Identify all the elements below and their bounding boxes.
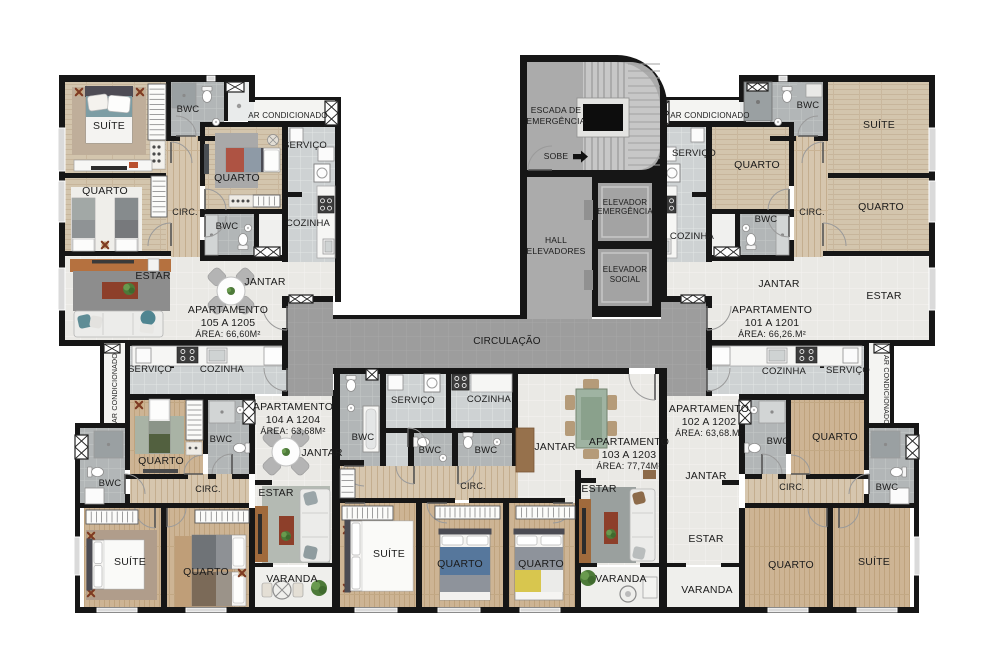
svg-text:BWC: BWC: [876, 482, 899, 493]
svg-text:JANTAR: JANTAR: [758, 278, 799, 290]
svg-text:ESCADA DE: ESCADA DE: [531, 105, 582, 115]
svg-text:QUARTO: QUARTO: [734, 159, 780, 171]
svg-text:COZINHA: COZINHA: [670, 231, 715, 242]
svg-text:SERVIÇO: SERVIÇO: [391, 395, 435, 406]
svg-text:BWC: BWC: [216, 221, 239, 232]
svg-text:ELEVADOR: ELEVADOR: [603, 265, 648, 274]
svg-text:VARANDA: VARANDA: [681, 584, 732, 596]
svg-text:EMERGÊNCIA: EMERGÊNCIA: [526, 116, 585, 126]
svg-text:SERVIÇO: SERVIÇO: [128, 364, 172, 375]
svg-text:ELEVADORES: ELEVADORES: [526, 246, 585, 256]
svg-text:SUÍTE: SUÍTE: [858, 555, 890, 568]
svg-text:JANTAR: JANTAR: [534, 441, 575, 453]
svg-text:104 A 1204: 104 A 1204: [266, 414, 321, 426]
svg-text:VARANDA: VARANDA: [266, 573, 317, 585]
svg-text:ÁREA: 63,68M²: ÁREA: 63,68M²: [260, 426, 325, 436]
svg-text:JANTAR: JANTAR: [244, 276, 285, 288]
svg-text:SUÍTE: SUÍTE: [863, 118, 895, 131]
svg-text:COZINHA: COZINHA: [467, 394, 512, 405]
svg-text:105 A 1205: 105 A 1205: [201, 317, 256, 329]
svg-text:BWC: BWC: [797, 100, 820, 111]
svg-text:CIRCULAÇÃO: CIRCULAÇÃO: [473, 334, 541, 347]
svg-text:HALL: HALL: [545, 235, 567, 245]
svg-text:BWC: BWC: [755, 214, 778, 225]
svg-text:SERVIÇO: SERVIÇO: [672, 148, 716, 159]
svg-text:ESTAR: ESTAR: [581, 483, 616, 495]
svg-text:AR CONDICIONADO: AR CONDICIONADO: [112, 353, 119, 423]
svg-text:APARTAMENTO: APARTAMENTO: [589, 436, 669, 448]
svg-text:QUARTO: QUARTO: [812, 431, 858, 443]
svg-text:ÁREA: 63,68.M²: ÁREA: 63,68.M²: [675, 428, 743, 438]
svg-text:BWC: BWC: [475, 445, 498, 456]
svg-text:EMERGÊNCIA: EMERGÊNCIA: [597, 207, 653, 216]
svg-text:ESTAR: ESTAR: [258, 487, 293, 499]
svg-text:ÁREA: 66,60M²: ÁREA: 66,60M²: [195, 329, 260, 339]
svg-text:CIRC.: CIRC.: [779, 482, 805, 492]
svg-text:QUARTO: QUARTO: [437, 558, 483, 570]
svg-text:QUARTO: QUARTO: [518, 558, 564, 570]
svg-text:JANTAR: JANTAR: [685, 470, 726, 482]
svg-text:SOBE: SOBE: [544, 151, 569, 161]
svg-text:ÁREA: 66,26.M²: ÁREA: 66,26.M²: [738, 329, 806, 339]
svg-text:CIRC.: CIRC.: [172, 207, 198, 217]
svg-text:CIRC.: CIRC.: [460, 481, 486, 491]
svg-text:CIRC.: CIRC.: [799, 207, 825, 217]
svg-text:QUARTO: QUARTO: [82, 185, 128, 197]
svg-text:COZINHA: COZINHA: [762, 366, 807, 377]
svg-text:VARANDA: VARANDA: [595, 573, 646, 585]
svg-text:JANTAR: JANTAR: [301, 447, 342, 459]
svg-text:APARTAMENTO: APARTAMENTO: [188, 304, 268, 316]
svg-text:AR CONDICIONADO: AR CONDICIONADO: [248, 111, 327, 120]
svg-text:QUARTO: QUARTO: [858, 201, 904, 213]
svg-text:103 A 1203: 103 A 1203: [602, 449, 657, 461]
svg-text:CIRC.: CIRC.: [195, 484, 221, 494]
svg-text:ESTAR: ESTAR: [866, 290, 901, 302]
svg-text:AR CONDICIONADO: AR CONDICIONADO: [882, 355, 889, 425]
svg-text:BWC: BWC: [352, 432, 375, 443]
svg-text:QUARTO: QUARTO: [214, 172, 260, 184]
svg-text:ESTAR: ESTAR: [135, 270, 170, 282]
svg-text:BWC: BWC: [210, 434, 233, 445]
svg-text:ESTAR: ESTAR: [688, 533, 723, 545]
svg-text:102 A 1202: 102 A 1202: [682, 416, 737, 428]
svg-text:BWC: BWC: [99, 478, 122, 489]
svg-text:SERVIÇO: SERVIÇO: [283, 140, 327, 151]
svg-text:SUÍTE: SUÍTE: [93, 119, 125, 132]
svg-text:BWC: BWC: [177, 104, 200, 115]
svg-text:QUARTO: QUARTO: [768, 559, 814, 571]
svg-text:APARTAMENTO: APARTAMENTO: [253, 401, 333, 413]
svg-text:QUARTO: QUARTO: [183, 566, 229, 578]
svg-text:COZINHA: COZINHA: [286, 218, 331, 229]
svg-text:APARTAMENTO: APARTAMENTO: [732, 304, 812, 316]
svg-text:SUÍTE: SUÍTE: [114, 555, 146, 568]
svg-text:BWC: BWC: [419, 445, 442, 456]
svg-text:APARTAMENTO: APARTAMENTO: [669, 403, 749, 415]
svg-text:QUARTO: QUARTO: [138, 455, 184, 467]
svg-text:AR CONDICIONADO: AR CONDICIONADO: [670, 111, 749, 120]
svg-text:ELEVADOR: ELEVADOR: [603, 198, 648, 207]
svg-text:SERVIÇO: SERVIÇO: [826, 365, 870, 376]
svg-text:101 A 1201: 101 A 1201: [745, 317, 800, 329]
svg-text:ÁREA: 77,74M²: ÁREA: 77,74M²: [596, 461, 661, 471]
svg-text:BWC: BWC: [767, 436, 790, 447]
svg-text:COZINHA: COZINHA: [200, 364, 245, 375]
svg-text:SOCIAL: SOCIAL: [610, 275, 641, 284]
svg-text:SUÍTE: SUÍTE: [373, 547, 405, 560]
